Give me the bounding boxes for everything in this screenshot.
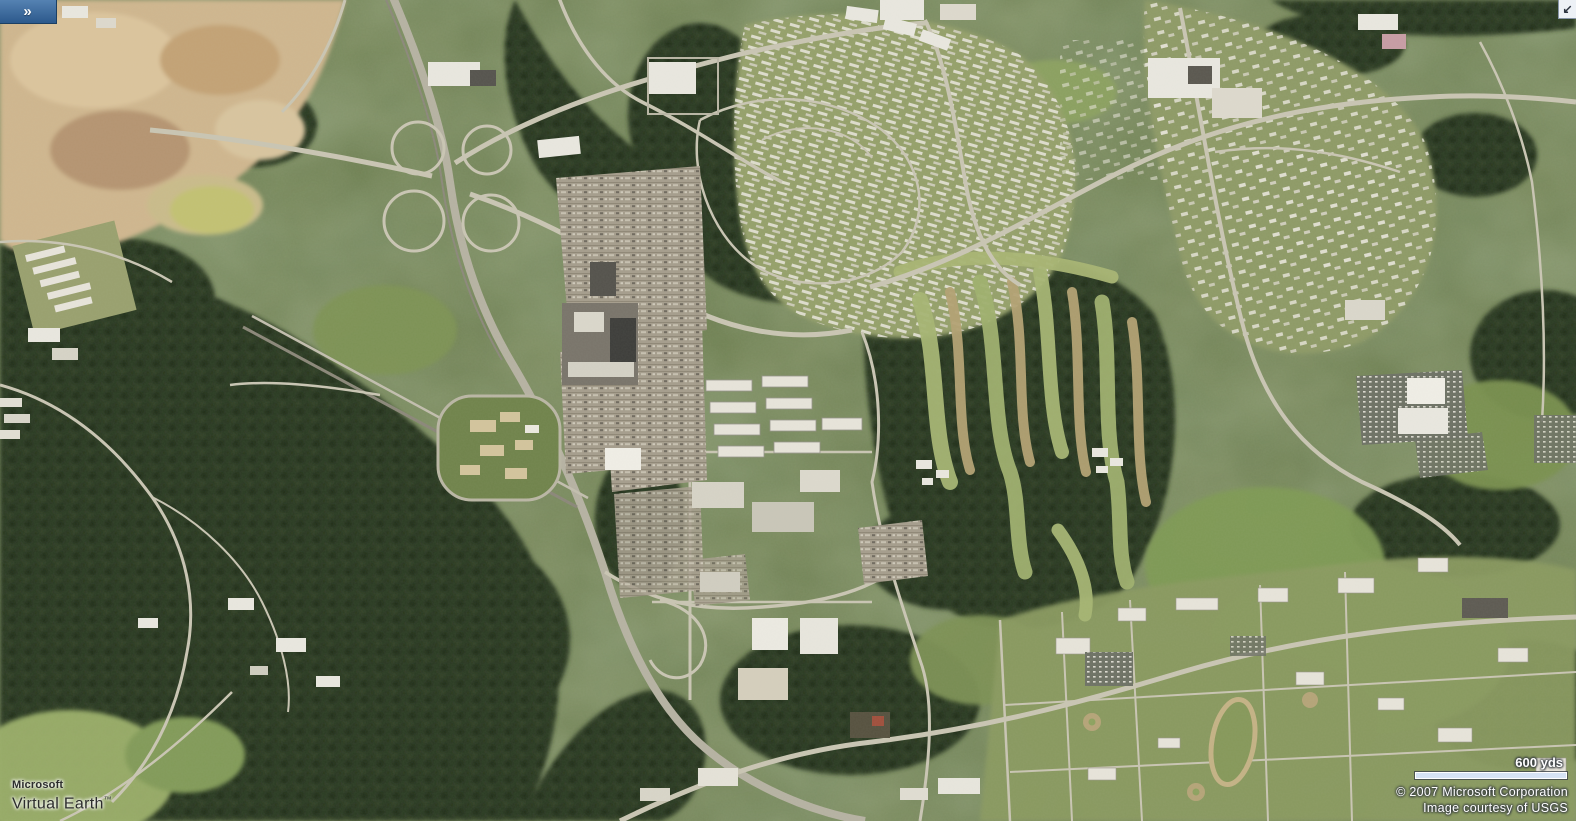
scale-label: 600 yds xyxy=(1415,755,1563,770)
logo-product: Virtual Earth™ xyxy=(12,791,112,812)
corner-arrow-button[interactable]: ↙ xyxy=(1558,0,1576,19)
double-chevron-right-icon: » xyxy=(0,1,56,23)
virtual-earth-map-view: » ↙ Microsoft Virtual Earth™ 600 yds © 2… xyxy=(0,0,1576,821)
logo-product-name: Virtual Earth xyxy=(12,795,104,812)
copyright-text: © 2007 Microsoft Corporation xyxy=(1396,784,1568,800)
aerial-imagery xyxy=(0,0,1576,821)
logo-microsoft: Microsoft xyxy=(12,780,112,791)
map-scale: 600 yds xyxy=(1415,755,1567,779)
scale-bar xyxy=(1415,772,1567,779)
satellite-map[interactable] xyxy=(0,0,1576,821)
virtual-earth-logo: Microsoft Virtual Earth™ xyxy=(12,780,112,812)
arrow-down-left-icon: ↙ xyxy=(1562,3,1572,15)
courtesy-text: Image courtesy of USGS xyxy=(1396,800,1568,816)
attribution: © 2007 Microsoft Corporation Image court… xyxy=(1396,784,1568,816)
expand-panel-button[interactable]: » xyxy=(0,0,57,24)
trademark-symbol: ™ xyxy=(104,795,112,804)
